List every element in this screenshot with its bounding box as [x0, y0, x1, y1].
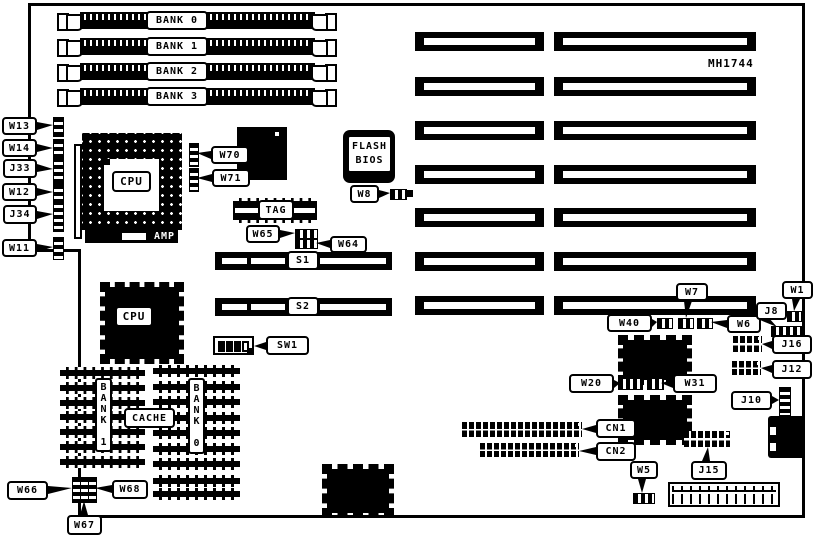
w7-jumper [678, 318, 694, 329]
callout-w5: W5 [630, 461, 658, 479]
isa-slot-window [424, 258, 535, 265]
callout-j8: J8 [756, 302, 787, 320]
bank2-label: BANK 2 [146, 62, 208, 81]
callout-w14: W14 [2, 139, 37, 157]
isa-slot [415, 296, 544, 315]
callout-w70: W70 [211, 146, 249, 164]
socket-lever-bar [74, 144, 82, 239]
callout-w68: W68 [112, 480, 148, 499]
amp-socket-bar: AMP [85, 230, 178, 243]
callout-w31: W31 [673, 374, 717, 393]
cache-label: CACHE [124, 408, 175, 428]
j33-jumper [53, 157, 64, 184]
callout-w7: W7 [676, 283, 708, 301]
simm-socket-bank2: BANK 2 [57, 62, 337, 81]
callout-w67: W67 [67, 515, 102, 535]
w11-jumper [53, 237, 64, 260]
power-connector-tabs [672, 486, 776, 492]
cn1-header [462, 422, 582, 437]
isa-slot [415, 121, 544, 140]
simm-socket-bank0: BANK 0 [57, 11, 337, 30]
callout-w65: W65 [246, 225, 280, 243]
isa-slot-window [424, 38, 535, 45]
isa-slot [554, 165, 756, 184]
callout-w11: W11 [2, 239, 37, 257]
isa-slot [554, 252, 756, 271]
callout-w40: W40 [607, 314, 652, 332]
callout-j10: J10 [731, 391, 772, 410]
j16-header [733, 336, 762, 352]
dip-switch-pos [218, 341, 225, 352]
isa-slot-window [424, 214, 535, 221]
simm-socket-bank1: BANK 1 [57, 37, 337, 56]
w31-jumper [647, 378, 664, 390]
flash-bios-label: FLASH BIOS [347, 135, 392, 173]
w70-jumper [189, 143, 199, 167]
isa-slot-window [563, 171, 747, 178]
w5-jumper [633, 493, 655, 504]
w20-jumper [618, 378, 643, 390]
j12-header [732, 361, 761, 375]
callout-w12: W12 [2, 183, 37, 201]
callout-w66: W66 [7, 481, 48, 500]
isa-slot [415, 165, 544, 184]
w68-jumper [88, 477, 97, 503]
cn2-header [480, 443, 579, 457]
isa-slot-window [563, 83, 747, 90]
w65-jumper [295, 229, 318, 239]
dip-chip-row [60, 456, 145, 468]
w71-jumper [189, 168, 199, 192]
w6-jumper [697, 318, 713, 329]
callout-j34: J34 [3, 205, 37, 224]
dip-switch-pos [226, 341, 233, 352]
dip-chip-row [153, 458, 240, 470]
j15-header [684, 431, 730, 447]
slot-window [251, 304, 285, 310]
isa-slot [415, 252, 544, 271]
isa-slot [415, 208, 544, 227]
slot-window [222, 258, 247, 264]
callout-cn1: CN1 [596, 419, 636, 438]
isa-slot [554, 121, 756, 140]
bank1-label: BANK 1 [146, 37, 208, 56]
cpu-socket-label: CPU [112, 171, 151, 192]
callout-sw1: SW1 [266, 336, 309, 355]
dip-chip-row [153, 488, 240, 500]
cache-extra-chips [153, 475, 240, 500]
s1-label: S1 [287, 251, 319, 270]
slot-window [320, 304, 386, 310]
simm-clip-icon [311, 90, 328, 107]
isa-slot-window [424, 302, 535, 309]
dip-chip-row [153, 475, 240, 487]
w1-jumper [787, 311, 802, 322]
j10-header [779, 387, 791, 416]
w14-jumper [53, 139, 64, 159]
isa-slot-window [424, 171, 535, 178]
w40-jumper [657, 318, 673, 329]
isa-slot [554, 296, 756, 315]
simm-clip-icon [311, 14, 328, 31]
keyboard-connector [768, 416, 805, 458]
j34-jumper [53, 200, 64, 232]
slot-window [251, 258, 285, 264]
isa-slot-window [424, 127, 535, 134]
pin1-dot-icon [275, 132, 279, 136]
bank0-label: BANK 0 [146, 11, 208, 30]
qfp-chip-bottom [322, 464, 394, 518]
simm-clip-icon [311, 65, 328, 82]
pin1-marker-icon [104, 159, 110, 165]
callout-j12: J12 [772, 360, 812, 379]
tag-label: TAG [258, 200, 294, 220]
flash-bios-line2: BIOS [355, 154, 383, 168]
simm-clip-icon [311, 40, 328, 57]
kb-pin-icon [770, 427, 776, 435]
bank3-label: BANK 3 [146, 87, 208, 106]
cache-bank1-label: BANK 1 [95, 378, 112, 452]
callout-w64: W64 [330, 236, 367, 253]
callout-j33: J33 [3, 159, 37, 178]
sw1-tail [247, 348, 253, 355]
dip-chip-row [153, 365, 240, 377]
amp-brand-label: AMP [154, 231, 175, 242]
w64-jumper [295, 239, 318, 249]
isa-slot-window [563, 38, 747, 45]
isa-slot [554, 32, 756, 51]
isa-slot-window [563, 302, 747, 309]
dip-switch-pos [234, 341, 241, 352]
callout-w13: W13 [2, 117, 37, 135]
isa-slot-window [563, 258, 747, 265]
isa-slot [554, 208, 756, 227]
flash-bios-line1: FLASH [352, 140, 387, 154]
isa-slot-window [563, 214, 747, 221]
simm-socket-bank3: BANK 3 [57, 87, 337, 106]
isa-slot [415, 77, 544, 96]
callout-cn2: CN2 [596, 442, 636, 461]
callout-j16: J16 [772, 335, 812, 354]
kb-pin-icon [770, 443, 776, 451]
cpu-qfp-label: CPU [115, 306, 153, 327]
callout-w20: W20 [569, 374, 614, 393]
callout-j15: J15 [691, 461, 727, 480]
amp-bar-window [122, 233, 146, 240]
part-number: MH1744 [708, 57, 754, 70]
w13-jumper [53, 117, 64, 137]
power-connector [668, 482, 780, 507]
slot-window [320, 258, 386, 264]
callout-w71: W71 [212, 169, 250, 187]
isa-slot [554, 77, 756, 96]
w8-jumper [390, 189, 407, 200]
cache-bank0-label: BANK 0 [188, 378, 205, 454]
w8-jumper-cap [406, 190, 413, 197]
isa-slot-window [424, 83, 535, 90]
callout-w1: W1 [782, 281, 813, 299]
s2-label: S2 [287, 297, 319, 316]
motherboard-diagram: BANK 0 BANK 1 BANK 2 BANK 3 MH1744 CPU A… [0, 0, 817, 538]
power-connector-pins [672, 494, 776, 504]
callout-w8: W8 [350, 185, 379, 203]
isa-slot-window [563, 127, 747, 134]
slot-window [222, 304, 247, 310]
isa-slot [415, 32, 544, 51]
